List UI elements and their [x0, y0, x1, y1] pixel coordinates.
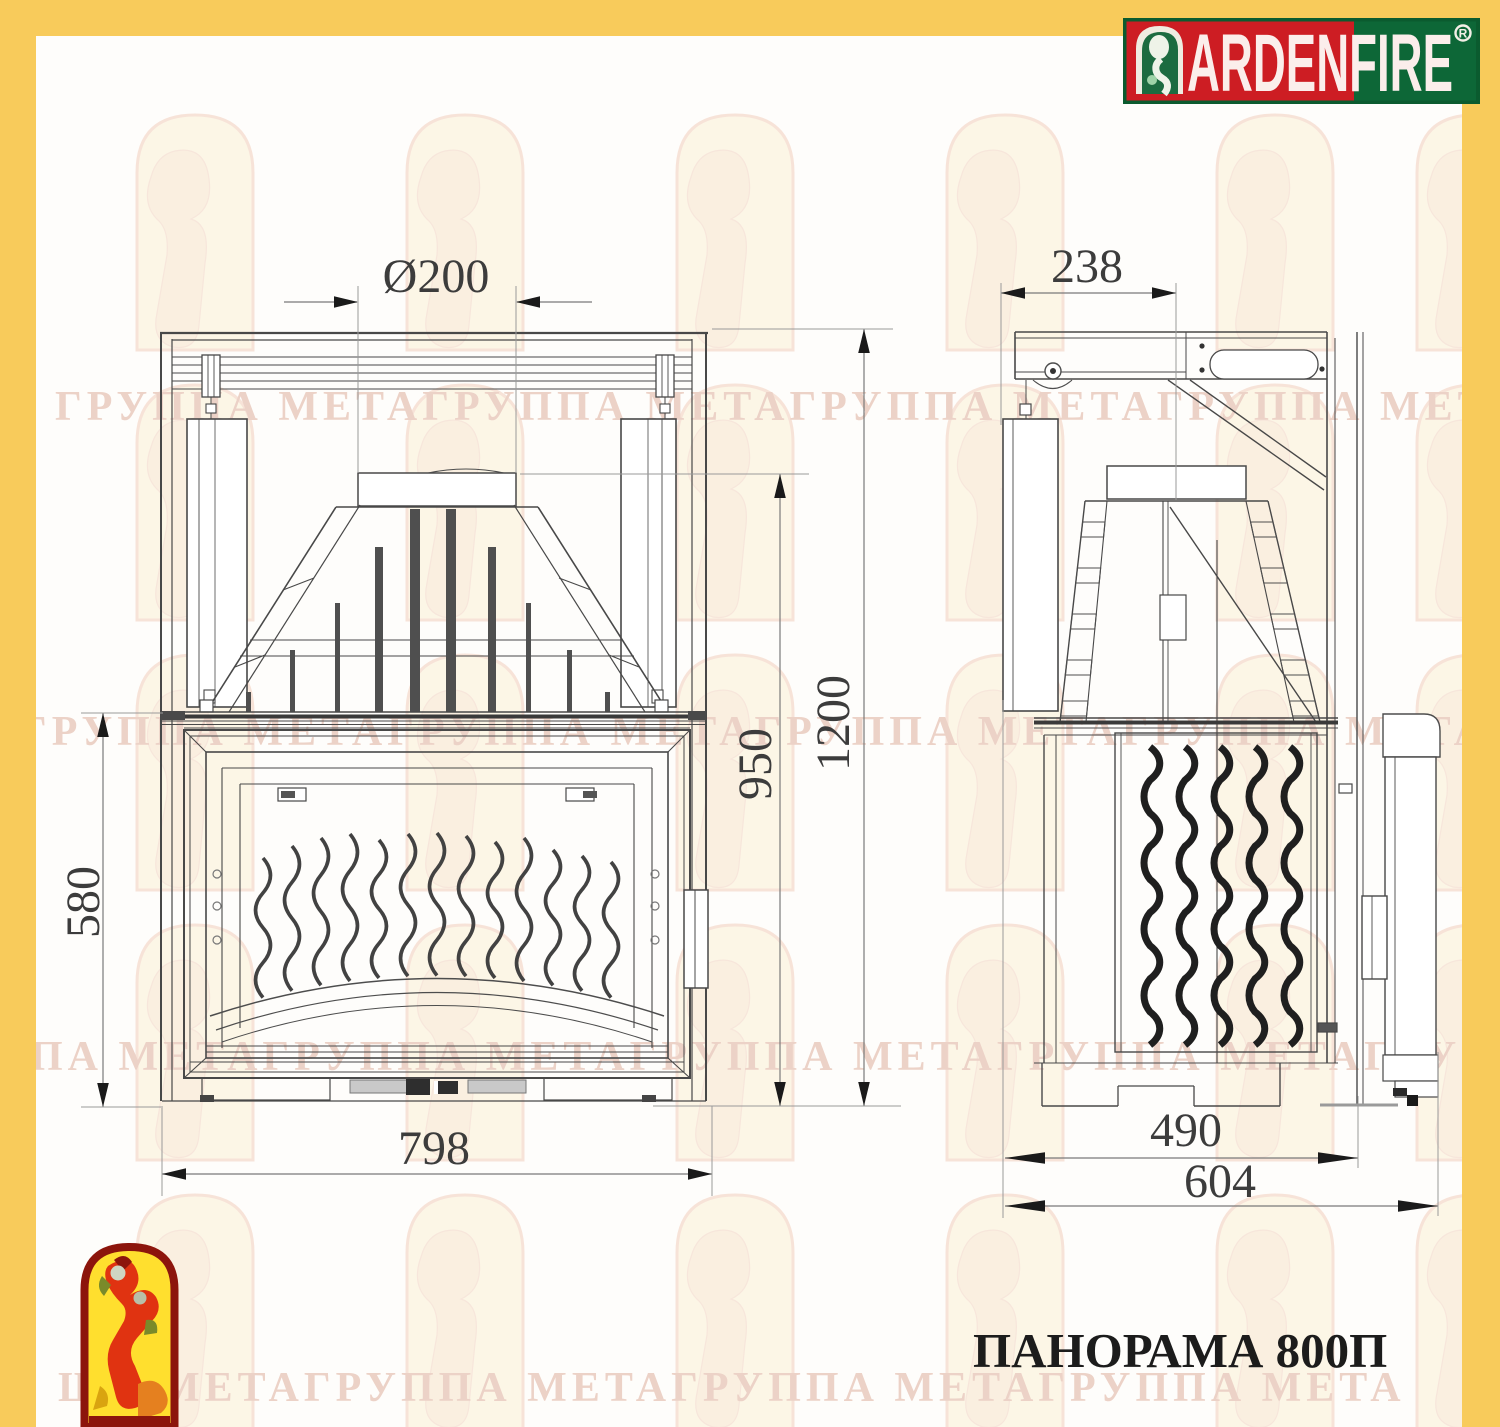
svg-text:950: 950: [729, 728, 782, 800]
svg-text:580: 580: [57, 866, 110, 938]
svg-text:Ø200: Ø200: [383, 250, 490, 303]
svg-text:238: 238: [1051, 240, 1123, 293]
svg-text:ARDENFIRE: ARDENFIRE: [1187, 18, 1453, 104]
svg-text:798: 798: [398, 1122, 470, 1175]
svg-text:R: R: [1459, 27, 1468, 41]
svg-text:1200: 1200: [807, 675, 860, 771]
svg-text:490: 490: [1150, 1104, 1222, 1157]
svg-text:604: 604: [1184, 1155, 1256, 1208]
